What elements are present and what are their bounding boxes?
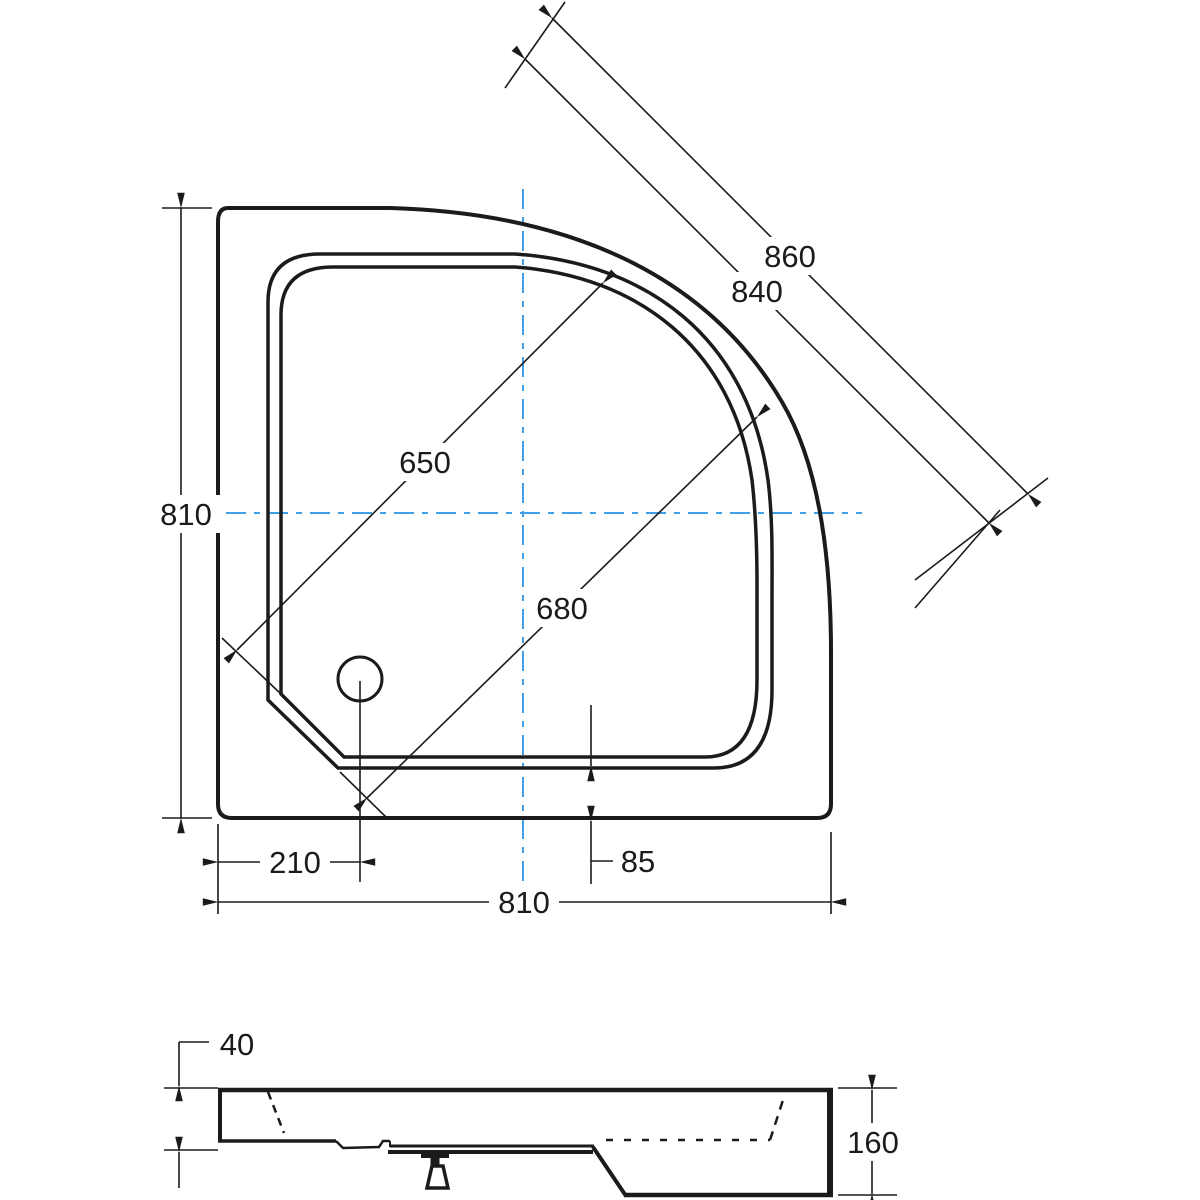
section-slope [593,1147,626,1196]
dim-label-85: 85 [621,844,655,879]
section-dimension-lines [164,1042,897,1195]
dim-label-840: 840 [731,274,783,309]
dim-label-860: 860 [764,239,816,274]
extension-line-basin-chamfer [222,638,281,694]
hidden-line-left [268,1092,284,1133]
extension-line-corner-inner [915,510,1000,608]
top-view [162,2,1048,914]
drain-trap [421,1152,449,1188]
section-view [164,1042,897,1196]
dim-label-680: 680 [536,591,588,626]
dim-label-210: 210 [269,845,321,880]
dim-label-650: 650 [399,445,451,480]
section-profile [218,1090,833,1196]
extension-line-apex [505,2,565,88]
extension-line-rim-chamfer [340,772,386,817]
dim-label-810-left: 810 [160,497,212,532]
label-backgrounds [151,237,903,1161]
drain-stem [431,1158,440,1165]
section-notch [336,1141,390,1148]
dimension-labels: 810 860 840 650 680 210 85 810 40 160 [160,239,899,1160]
drain-flange [421,1152,449,1158]
hidden-line-right [770,1100,783,1140]
drain-siphon-cup [427,1166,448,1188]
dim-label-40: 40 [220,1027,254,1062]
rim-contour-outer [268,254,772,768]
technical-drawing-page: 810 860 840 650 680 210 85 810 40 160 [0,0,1200,1200]
dim-label-160: 160 [847,1125,899,1160]
dim-label-810-bottom: 810 [498,885,550,920]
shower-tray-technical-drawing: 810 860 840 650 680 210 85 810 40 160 [0,0,1200,1200]
